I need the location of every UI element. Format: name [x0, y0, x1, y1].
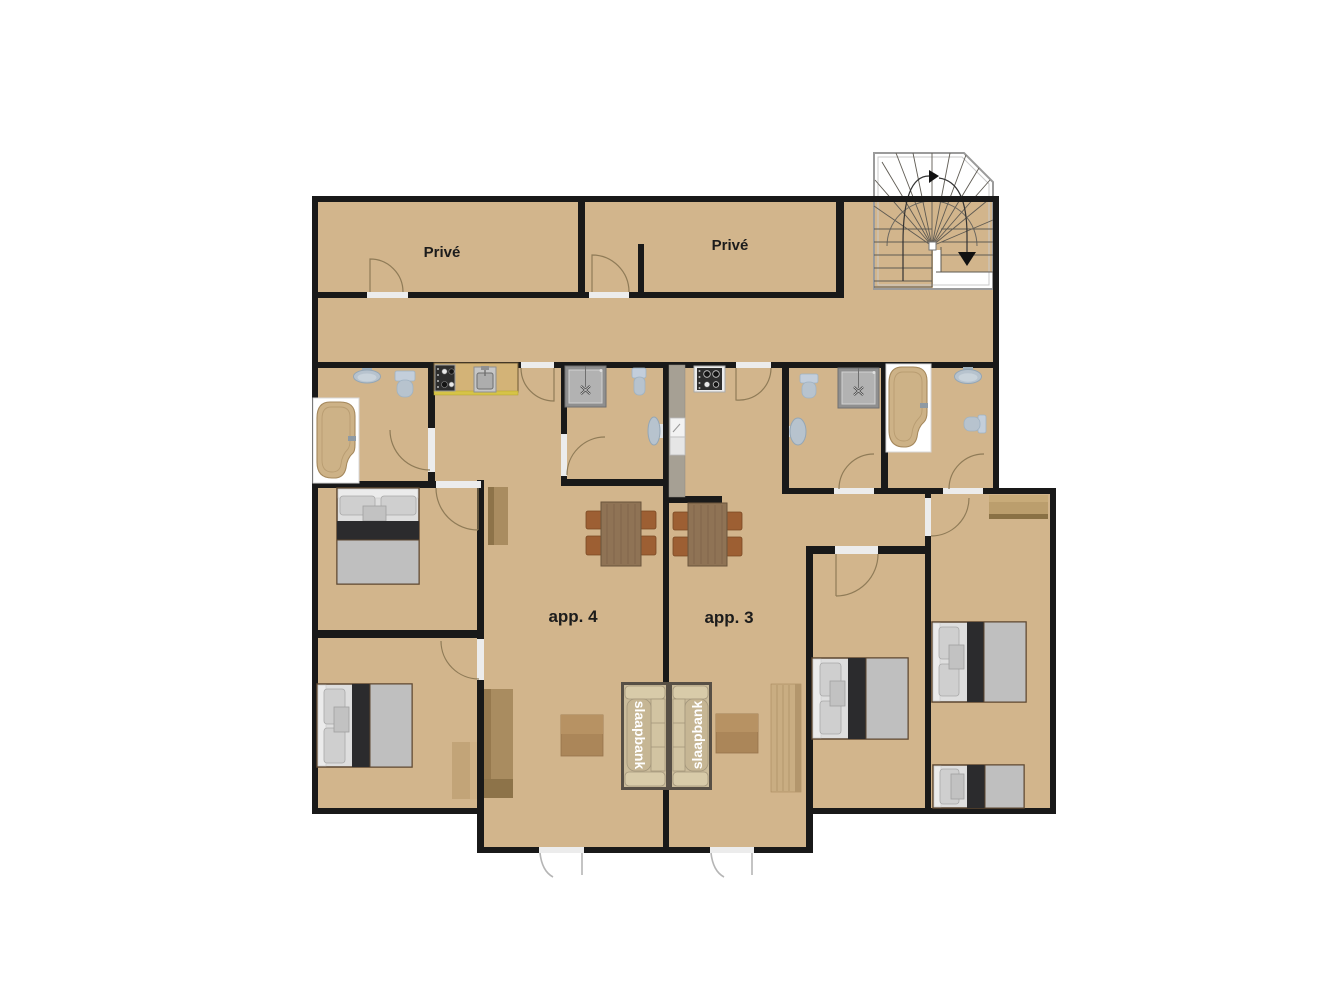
svg-text:app. 4: app. 4 — [548, 607, 598, 626]
svg-text:Privé: Privé — [424, 244, 461, 261]
svg-text:slaapbank: slaapbank — [632, 701, 648, 770]
svg-text:slaapbank: slaapbank — [689, 701, 705, 770]
svg-text:Privé: Privé — [712, 237, 749, 254]
svg-text:app. 3: app. 3 — [704, 608, 753, 627]
